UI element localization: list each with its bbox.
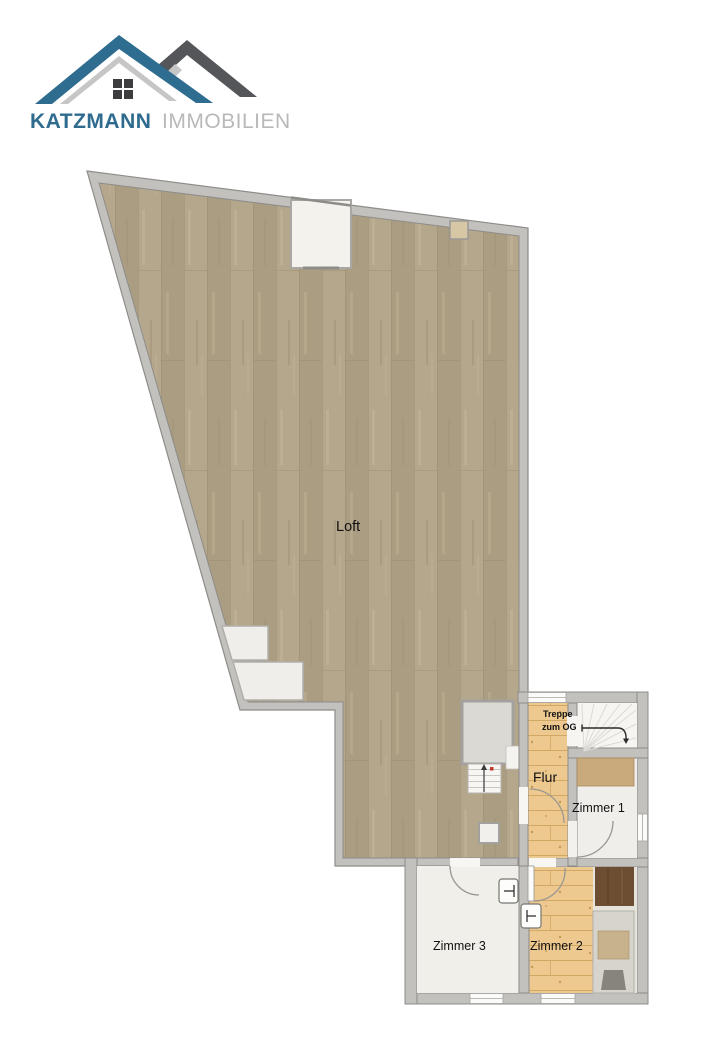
rooms-right-wall bbox=[637, 692, 648, 1004]
company-logo: KATZMANN IMMOBILIEN bbox=[30, 35, 291, 133]
zimmer1-window bbox=[638, 814, 648, 841]
chimney-fixture bbox=[450, 221, 468, 239]
zimmer2-label: Zimmer 2 bbox=[530, 939, 583, 953]
zimmer3-door-gap bbox=[450, 858, 480, 867]
wall-fixture-zimmer2 bbox=[521, 904, 541, 928]
zimmer1-door-gap bbox=[568, 821, 577, 857]
loft-dormer-niche bbox=[291, 200, 351, 268]
floorplan-page: KATZMANN IMMOBILIEN L bbox=[0, 0, 720, 1040]
treppe-window bbox=[528, 693, 566, 703]
loft-shaft-niche bbox=[479, 823, 499, 843]
flur-left-wall bbox=[519, 703, 528, 866]
zimmer2-zimmer3-wall bbox=[519, 866, 529, 993]
rooms-bottom-wall bbox=[405, 993, 648, 1004]
wall-fixture-zimmer3 bbox=[499, 879, 518, 903]
loft-label: Loft bbox=[336, 519, 360, 535]
floorplan-canvas: KATZMANN IMMOBILIEN L bbox=[0, 0, 720, 1040]
loft-flur-door-gap bbox=[519, 787, 528, 824]
loft-room: Loft bbox=[87, 171, 528, 866]
zimmer1-label: Zimmer 1 bbox=[572, 801, 625, 815]
zimmer2-bed bbox=[593, 911, 634, 993]
flur-label: Flur bbox=[533, 769, 557, 785]
bed-mattress bbox=[598, 931, 629, 959]
loft-stair-landing bbox=[462, 701, 513, 764]
loft-staircase bbox=[468, 764, 501, 793]
logo-brand-text: KATZMANN bbox=[30, 110, 151, 133]
zimmer3-left-wall bbox=[405, 858, 417, 1004]
treppe-label-line1: Treppe bbox=[543, 709, 573, 719]
bed-footboard bbox=[601, 970, 626, 990]
stairsroom-bottom-wall bbox=[568, 748, 648, 758]
logo-window-icon bbox=[113, 79, 133, 99]
zimmer1-sideboard bbox=[577, 758, 634, 786]
zimmer3-window bbox=[470, 994, 503, 1004]
zimmer2-door-leaf bbox=[528, 866, 534, 901]
zimmer3-label: Zimmer 3 bbox=[433, 939, 486, 953]
zimmer2-wardrobe bbox=[595, 867, 634, 906]
stair-red-marker bbox=[490, 767, 494, 771]
treppe-label-line2: zum OG bbox=[542, 722, 577, 732]
radiator-niche bbox=[506, 746, 519, 769]
logo-suffix-text: IMMOBILIEN bbox=[162, 110, 291, 133]
loft-floor bbox=[99, 183, 519, 858]
loft-alcove-lower bbox=[233, 662, 303, 700]
zimmer2-window bbox=[541, 994, 575, 1004]
